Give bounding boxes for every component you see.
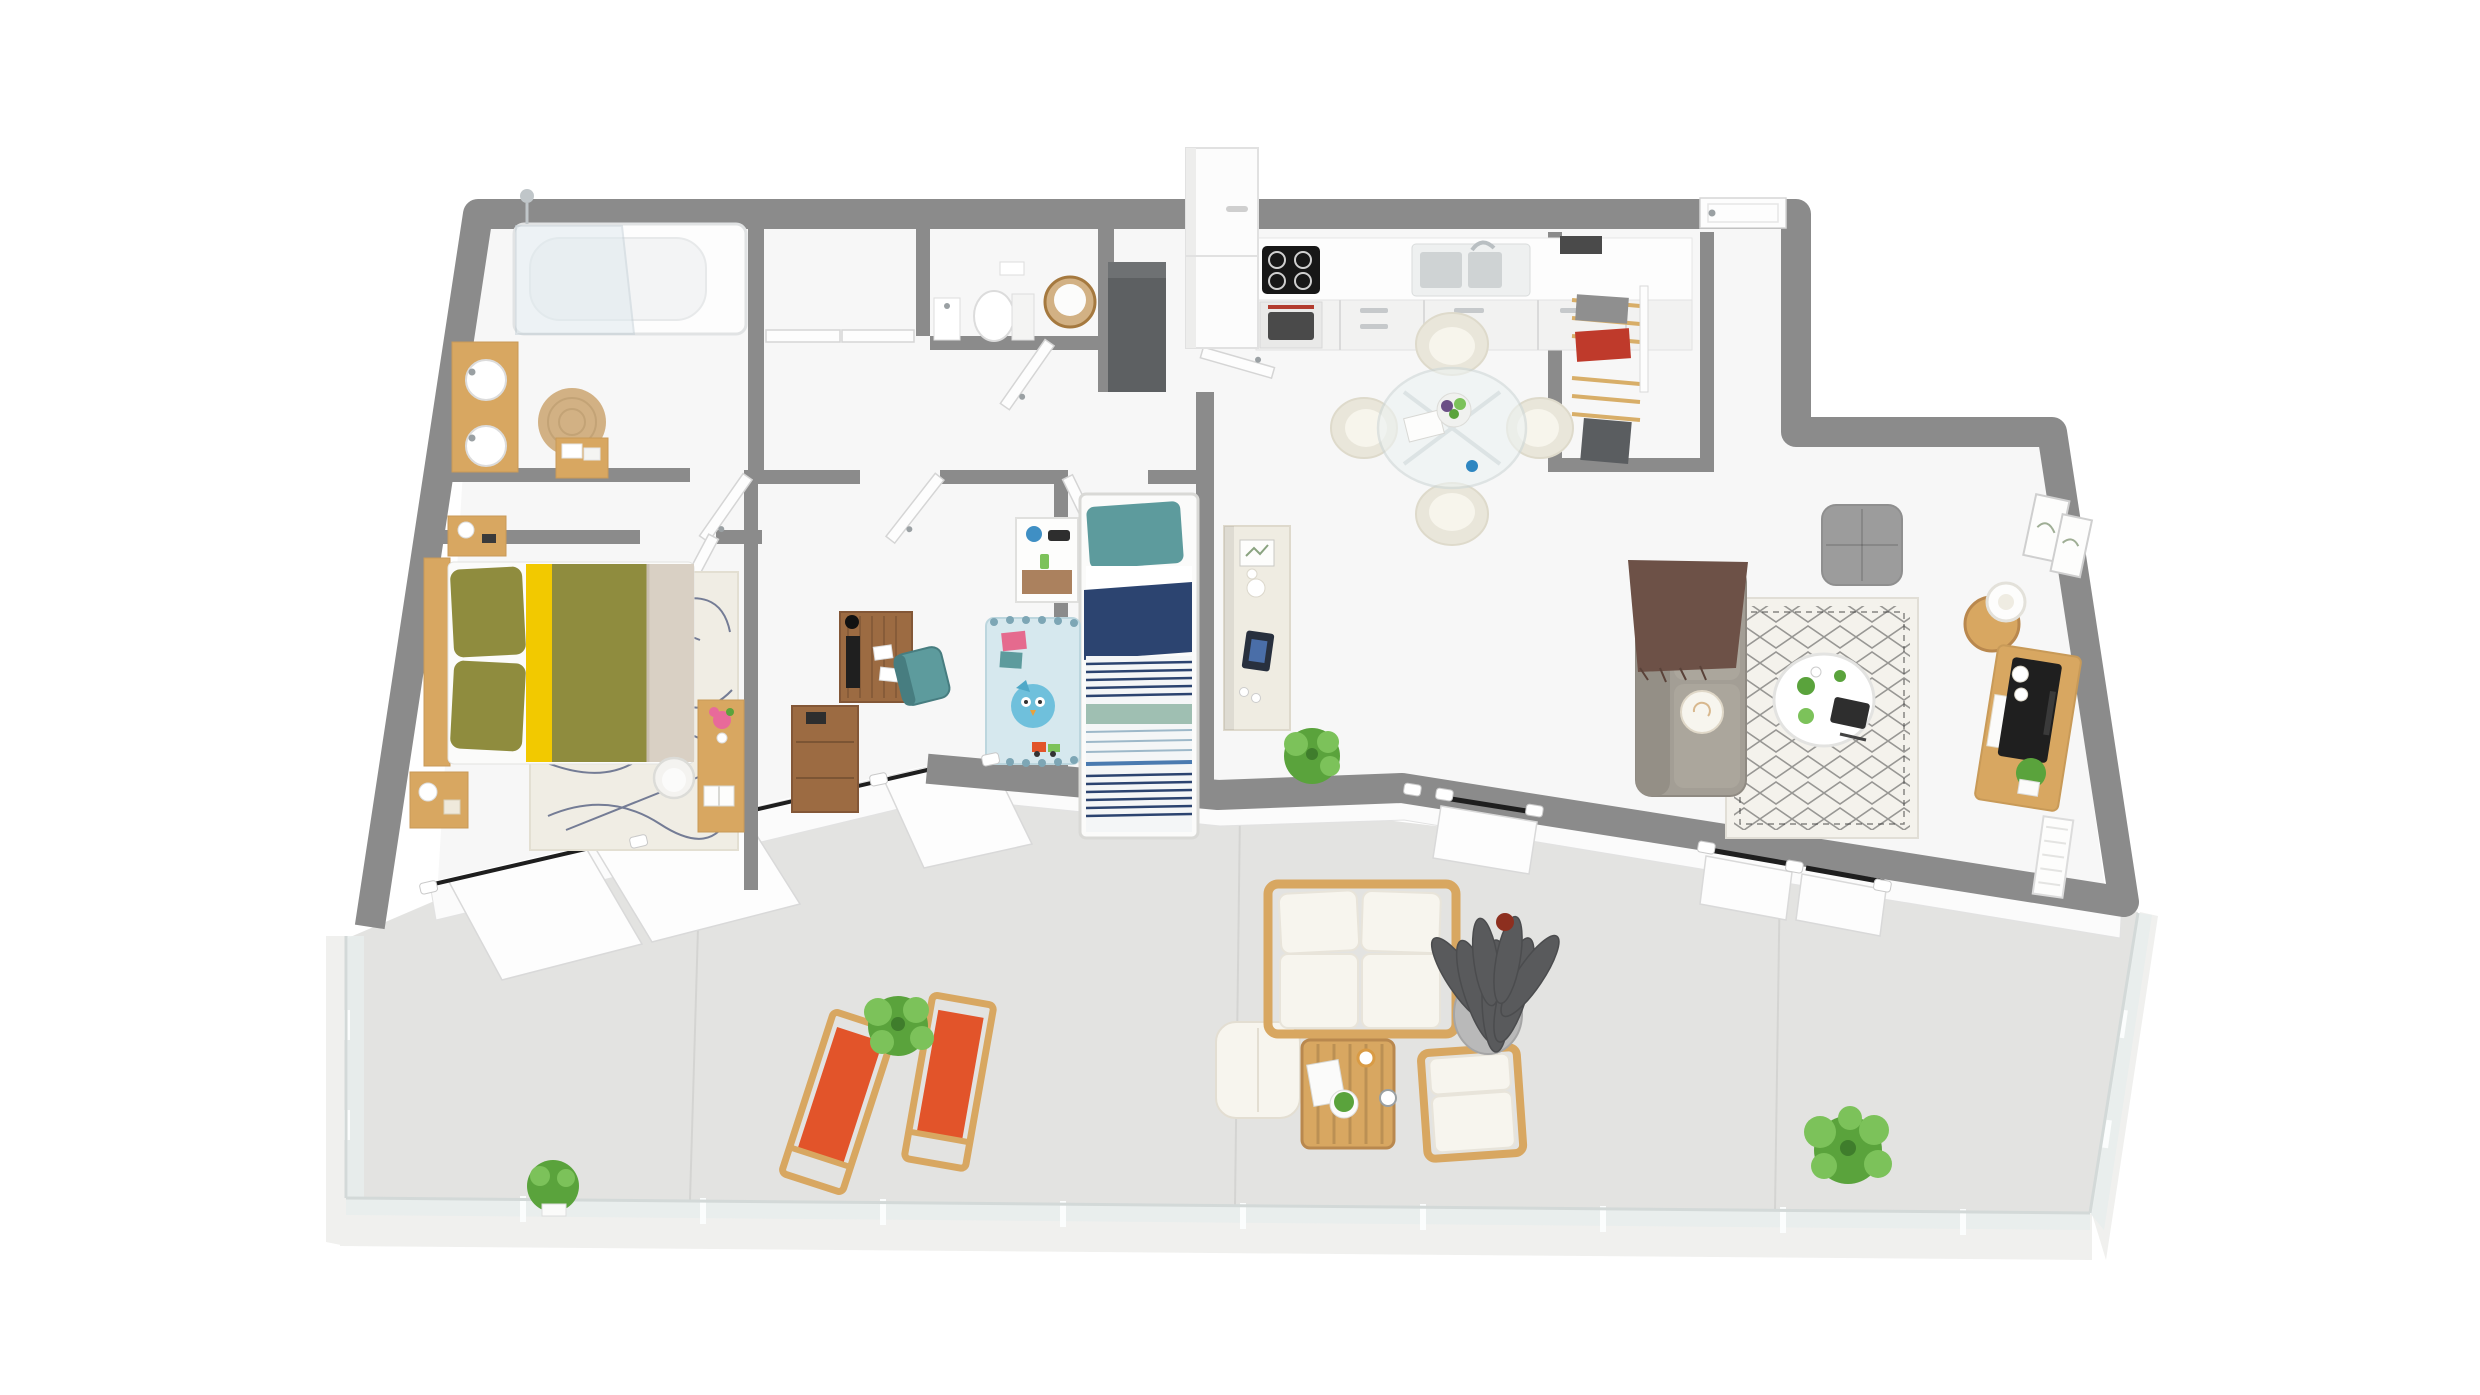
floor-plan-render <box>0 0 2480 1395</box>
olive-duvet <box>552 564 652 762</box>
coffee-table <box>1774 654 1874 746</box>
wall-office-top-a <box>758 470 860 484</box>
owl-rug <box>986 616 1080 767</box>
dining-chair-south <box>1416 483 1488 545</box>
picture-book-1 <box>1001 631 1027 651</box>
chest-of-drawers <box>792 706 858 812</box>
brown-throw <box>1628 560 1748 672</box>
bedside-lamp-2 <box>419 783 437 801</box>
wall-dressing-bottom <box>1548 458 1714 472</box>
shower-glass-screen <box>516 226 634 334</box>
wall-office-top-b <box>940 470 1068 484</box>
beige-throw <box>648 564 694 762</box>
master-bedroom <box>410 516 744 850</box>
sofa <box>1628 560 1748 796</box>
kids-bed <box>1080 494 1198 838</box>
entry <box>1700 198 1786 228</box>
gray-pouf <box>1822 505 1902 585</box>
yellow-runner <box>526 564 552 762</box>
shelf-items <box>1560 236 1602 254</box>
closet-door-2 <box>842 330 914 342</box>
closet-door-1 <box>766 330 840 342</box>
hall-closet <box>766 330 914 342</box>
door-handle-icon <box>1709 210 1716 217</box>
blue-desk-lamp <box>1026 526 1042 542</box>
owl-icon <box>1011 684 1055 728</box>
sideboard-frame <box>1240 540 1274 566</box>
red-clothes <box>1575 328 1631 362</box>
garden-coffee-table <box>1302 1040 1396 1148</box>
teal-pillow <box>1086 501 1184 569</box>
pillow-2 <box>450 660 527 752</box>
blue-cup <box>1466 460 1478 472</box>
wall-closet-right <box>916 212 930 336</box>
camera <box>845 615 859 629</box>
dark-tall-cabinet <box>1108 278 1166 392</box>
parasol-knob <box>1496 913 1514 931</box>
living-plant <box>1284 728 1340 784</box>
fridge-column <box>1186 148 1258 348</box>
garden-armchair <box>1420 1047 1523 1159</box>
headboard <box>424 558 450 766</box>
pillow-1 <box>450 566 527 658</box>
monitor <box>846 636 860 688</box>
tall-cabinet-top <box>1108 262 1166 278</box>
wall-master-office <box>744 544 758 890</box>
wall-bathroom-right <box>748 212 764 482</box>
fridge-handle <box>1226 206 1248 212</box>
cream-cushion <box>1681 691 1723 733</box>
dark-clothes <box>1580 418 1631 464</box>
glass-dining-table <box>1378 368 1526 488</box>
terrace-slab-left <box>326 936 346 1246</box>
terrace-plant-large <box>1804 1106 1892 1184</box>
nightstand-south <box>410 772 468 828</box>
shower-head-icon <box>520 189 534 203</box>
paper-1 <box>873 645 893 660</box>
navy-duvet-fold <box>1084 582 1192 660</box>
kids-nightstand <box>1016 518 1078 602</box>
wall-kids-top <box>1148 470 1196 484</box>
garden-sofa <box>1268 884 1456 1034</box>
coffee-mug-2 <box>1380 1090 1396 1106</box>
striped-duvet <box>1086 656 1192 832</box>
white-vase <box>1247 579 1265 597</box>
nightstand-north <box>448 516 506 556</box>
toilet <box>974 291 1014 341</box>
sideboard <box>1224 526 1290 730</box>
picture-book-2 <box>999 651 1022 668</box>
washbasin-1 <box>466 360 506 400</box>
wall-dressing-right <box>1700 232 1714 472</box>
floor-plan-page <box>0 0 2480 1395</box>
coffee-table-plant-2 <box>1834 670 1846 682</box>
coffee-table-plant-1 <box>1797 677 1815 695</box>
gray-clothes <box>1575 294 1629 324</box>
flush-plate <box>1000 262 1024 275</box>
double-bed <box>424 558 694 766</box>
wardrobe-frame <box>1640 286 1648 392</box>
table-plant <box>1334 1092 1354 1112</box>
dining-chair-north <box>1416 313 1488 375</box>
bedside-lamp-1 <box>458 522 474 538</box>
washbasin-2 <box>466 426 506 466</box>
terrace-shrub <box>864 996 934 1056</box>
coffee-mug-1 <box>1358 1050 1374 1066</box>
